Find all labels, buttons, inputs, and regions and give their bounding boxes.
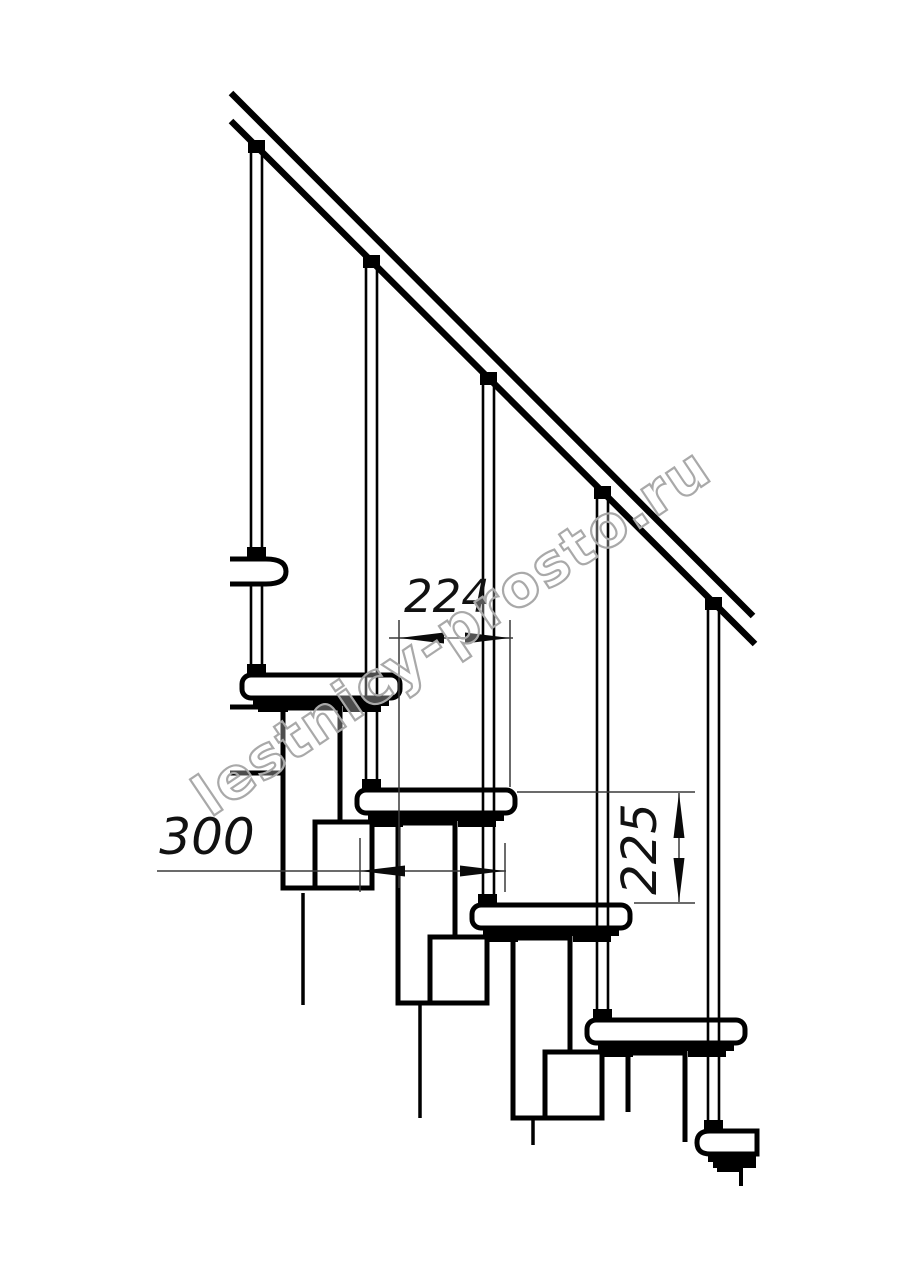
baluster-top-cap <box>363 255 380 268</box>
handrail-top-line <box>231 93 753 616</box>
upper-tread-end <box>230 559 286 584</box>
arrow-up <box>674 793 685 838</box>
staircase-technical-drawing: 224 300 225 lestnicy-prosto.ru <box>0 0 914 1280</box>
tread <box>472 905 630 928</box>
module-lower-box <box>315 822 372 888</box>
baluster-top-cap <box>248 140 265 153</box>
module-lower-box <box>430 937 487 1003</box>
screenshot-canvas: 224 300 225 lestnicy-prosto.ru <box>0 0 914 1280</box>
baluster-1 <box>247 140 266 675</box>
dimension-value-riser: 225 <box>612 803 668 895</box>
module-drop-box-partial <box>628 1053 685 1142</box>
tread <box>587 1020 745 1043</box>
flange-lug-right <box>573 936 611 942</box>
module-lower-box <box>545 1052 602 1118</box>
tread <box>697 1131 757 1154</box>
arrow-down <box>674 858 685 902</box>
dimension-riser-225: 225 <box>517 792 695 903</box>
flange-lug-right <box>458 821 496 827</box>
baluster-collar <box>247 664 266 675</box>
baluster-collar <box>478 894 497 905</box>
step-5-partial <box>697 1131 757 1186</box>
baluster-joint <box>247 547 266 558</box>
baluster-collar <box>704 1120 723 1131</box>
tread <box>357 790 515 813</box>
flange-lug-left <box>488 936 518 942</box>
module-contour-line <box>717 1170 741 1186</box>
dimension-value-tread: 300 <box>159 808 254 866</box>
baluster-top-cap <box>480 372 497 385</box>
baluster-top-cap <box>705 597 722 610</box>
flange-lug-left <box>603 1051 633 1057</box>
baluster-collar <box>593 1009 612 1020</box>
flange-lug-right <box>733 1160 756 1168</box>
baluster-collar <box>362 779 381 790</box>
